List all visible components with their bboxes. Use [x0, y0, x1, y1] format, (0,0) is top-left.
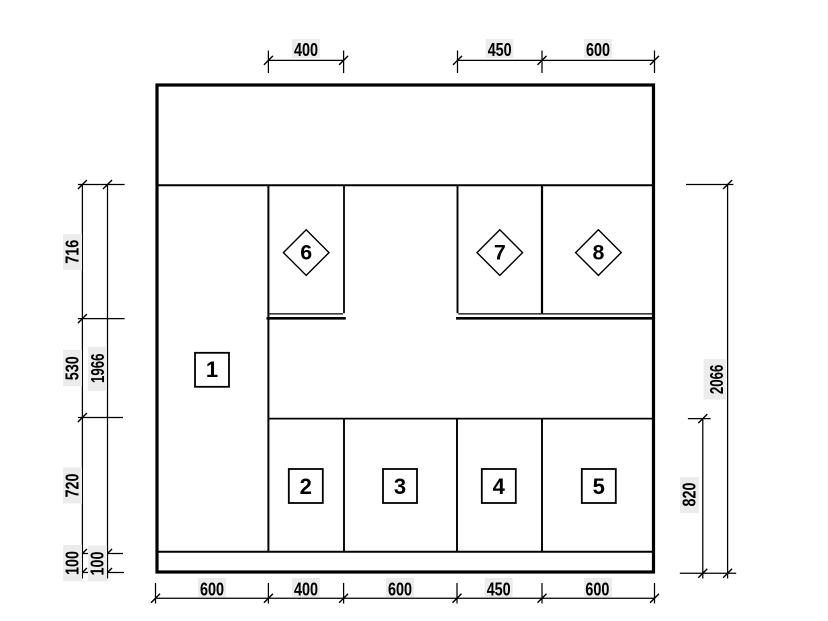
- svg-text:450: 450: [487, 579, 511, 599]
- svg-text:6: 6: [300, 241, 312, 265]
- svg-text:8: 8: [592, 241, 604, 265]
- svg-text:600: 600: [200, 579, 224, 599]
- svg-text:400: 400: [294, 40, 318, 60]
- svg-text:2066: 2066: [707, 365, 727, 395]
- svg-text:2: 2: [300, 474, 312, 499]
- svg-text:530: 530: [63, 356, 83, 380]
- svg-text:600: 600: [585, 579, 609, 599]
- svg-text:1966: 1966: [88, 354, 108, 384]
- svg-text:7: 7: [494, 241, 506, 265]
- svg-text:400: 400: [294, 579, 318, 599]
- svg-text:1: 1: [206, 357, 218, 382]
- svg-text:5: 5: [593, 474, 605, 499]
- svg-text:4: 4: [493, 474, 506, 499]
- svg-text:100: 100: [63, 551, 83, 575]
- svg-text:100: 100: [88, 552, 108, 576]
- svg-text:3: 3: [394, 474, 406, 499]
- svg-text:600: 600: [586, 40, 610, 60]
- svg-text:716: 716: [63, 240, 83, 264]
- svg-text:820: 820: [680, 483, 700, 507]
- svg-text:600: 600: [388, 579, 412, 599]
- svg-text:450: 450: [488, 40, 512, 60]
- svg-text:720: 720: [63, 474, 83, 498]
